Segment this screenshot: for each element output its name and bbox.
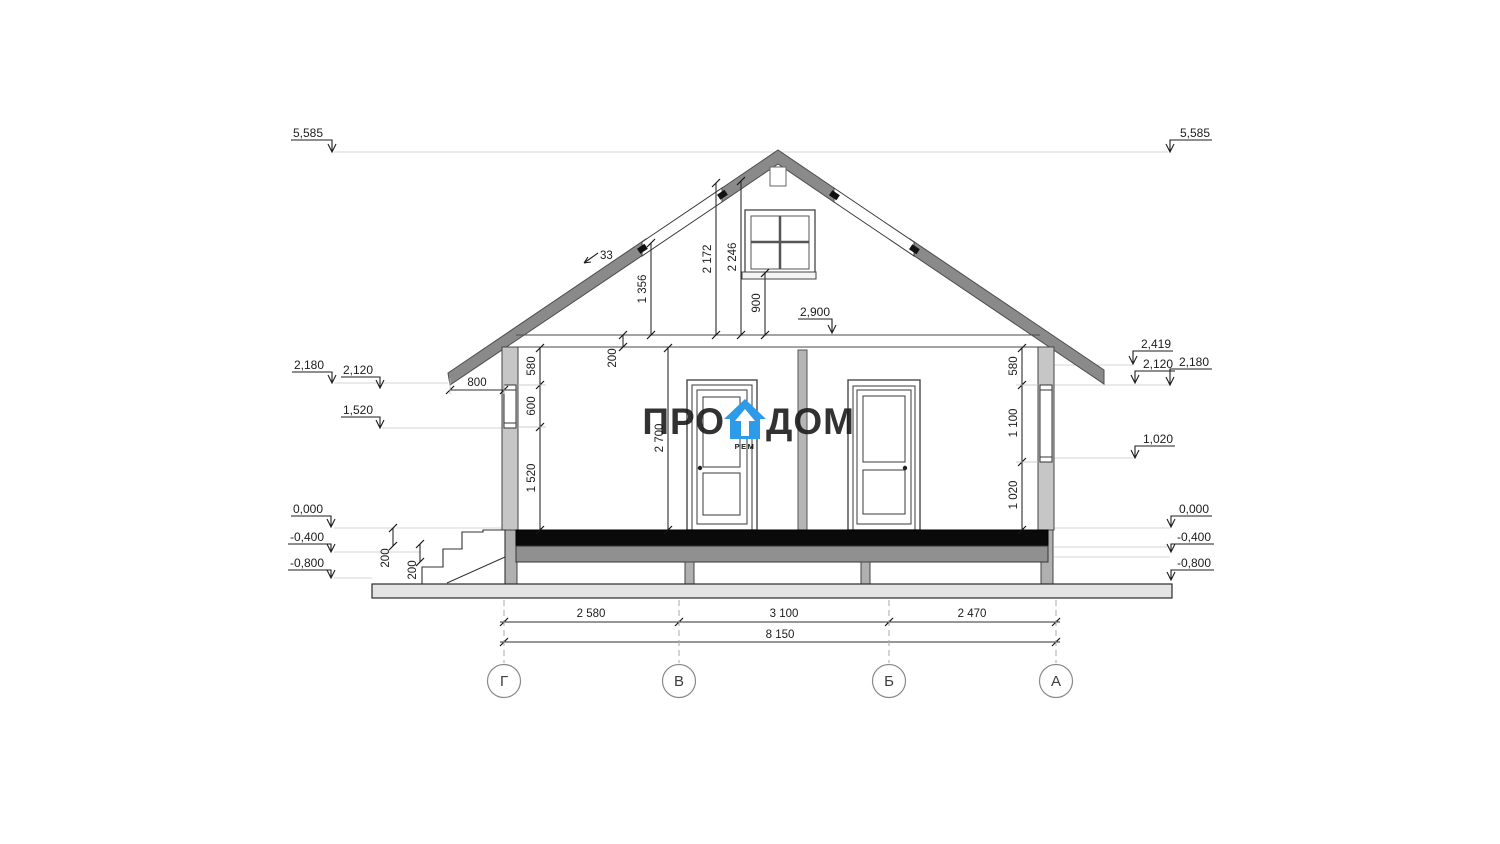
- level-marker-ridge-left: 5,585: [291, 126, 336, 152]
- left-wall: [502, 347, 518, 530]
- axis-label-a: А: [1051, 673, 1061, 690]
- dim-left-top: 580: [526, 356, 538, 375]
- level-marker-left-eave: 2,180: [292, 358, 336, 383]
- level-marker-right-floor: 0,000: [1167, 502, 1212, 527]
- svg-text:0,000: 0,000: [293, 502, 323, 516]
- level-marker-left-floor: 0,000: [291, 502, 335, 527]
- house-section-drawing: 1 356 2 172 2 246 900 33 800 200 580 600…: [0, 0, 1500, 844]
- gable-window: [742, 210, 816, 279]
- watermark-word1: ПРО: [642, 401, 725, 442]
- svg-text:2,120: 2,120: [343, 363, 373, 377]
- ground-slab: [372, 584, 1172, 598]
- dim-right-top: 580: [1008, 356, 1020, 375]
- level-marker-ceiling: 2,900: [798, 305, 836, 333]
- ceiling: [516, 335, 1040, 347]
- roof-slope-right: [910, 239, 1104, 384]
- door-right: [848, 380, 920, 530]
- dim-eave-overhang: 800: [467, 377, 486, 389]
- svg-text:-0,800: -0,800: [1177, 556, 1211, 570]
- axis-label-v: В: [674, 673, 684, 690]
- level-marker-right-ground: -0,800: [1167, 556, 1214, 580]
- dim-span-g-v: 2 580: [577, 608, 606, 620]
- watermark-subtext: РЕМ: [735, 442, 756, 451]
- section-drawing-page: 1 356 2 172 2 246 900 33 800 200 580 600…: [0, 0, 1500, 844]
- svg-text:-0,400: -0,400: [1177, 530, 1211, 544]
- floor-joist-band: [516, 546, 1048, 562]
- watermark-logo: ПРО ДОМ РЕМ: [642, 399, 855, 451]
- svg-text:-0,800: -0,800: [290, 556, 324, 570]
- level-marker-right-plinth: -0,400: [1167, 530, 1214, 552]
- door-right-handle: [903, 466, 907, 470]
- svg-text:1,520: 1,520: [343, 403, 373, 417]
- level-marker-left-window-sill: 1,520: [341, 403, 384, 428]
- right-wall-window: [1040, 385, 1052, 462]
- level-marker-right-window-sill: 1,020: [1131, 432, 1175, 458]
- level-marker-ridge-right: 5,585: [1166, 126, 1212, 152]
- level-marker-left-ground: -0,800: [288, 556, 335, 578]
- dim-roof-angle: 33: [600, 250, 613, 262]
- svg-text:-0,400: -0,400: [290, 530, 324, 544]
- floor-slab: [516, 530, 1048, 546]
- dim-ceiling-thickness: 200: [607, 348, 619, 367]
- left-wall-post: [505, 530, 517, 584]
- dim-span-v-b: 3 100: [770, 608, 799, 620]
- level-marker-left-plinth: -0,400: [288, 530, 335, 552]
- watermark-word2: ДОМ: [766, 401, 855, 442]
- ridge-vent: [770, 167, 786, 186]
- dim-gable-window-sill: 900: [751, 293, 763, 312]
- level-marker-right-window-head: 2,120: [1131, 357, 1175, 383]
- svg-text:2,419: 2,419: [1141, 337, 1171, 351]
- pile-2: [861, 562, 870, 584]
- dim-stair-riser-2: 200: [407, 560, 419, 579]
- left-wall-window: [504, 385, 516, 428]
- dim-left-sill: 1 520: [526, 464, 538, 493]
- level-marker-left-window-head: 2,120: [341, 363, 384, 388]
- svg-text:1,020: 1,020: [1143, 432, 1173, 446]
- dim-left-window: 600: [526, 396, 538, 415]
- gable-window-sill: [742, 272, 816, 279]
- dim-right-window: 1 100: [1008, 409, 1020, 438]
- door-left-handle: [698, 466, 702, 470]
- dim-stair-riser-1: 200: [380, 548, 392, 567]
- dim-gable-inner: 2 172: [702, 245, 714, 274]
- dim-gable-ridge: 2 246: [727, 243, 739, 272]
- dim-rafter-drop: 1 356: [637, 275, 649, 304]
- svg-text:0,000: 0,000: [1179, 502, 1209, 516]
- svg-text:5,585: 5,585: [293, 126, 323, 140]
- rafter-upper-right: [834, 188, 914, 256]
- svg-text:5,585: 5,585: [1180, 126, 1210, 140]
- svg-text:2,180: 2,180: [1179, 355, 1209, 369]
- axis-label-g: Г: [500, 673, 508, 690]
- svg-text:2,900: 2,900: [800, 305, 830, 319]
- svg-text:2,120: 2,120: [1143, 357, 1173, 371]
- dim-span-b-a: 2 470: [958, 608, 987, 620]
- entrance-stairs: [422, 530, 505, 584]
- axis-label-b: Б: [884, 673, 894, 690]
- dim-span-total: 8 150: [766, 629, 795, 641]
- svg-text:2,180: 2,180: [294, 358, 324, 372]
- floor-structure: [516, 530, 1048, 584]
- dim-right-sill: 1 020: [1008, 481, 1020, 510]
- pile-1: [685, 562, 694, 584]
